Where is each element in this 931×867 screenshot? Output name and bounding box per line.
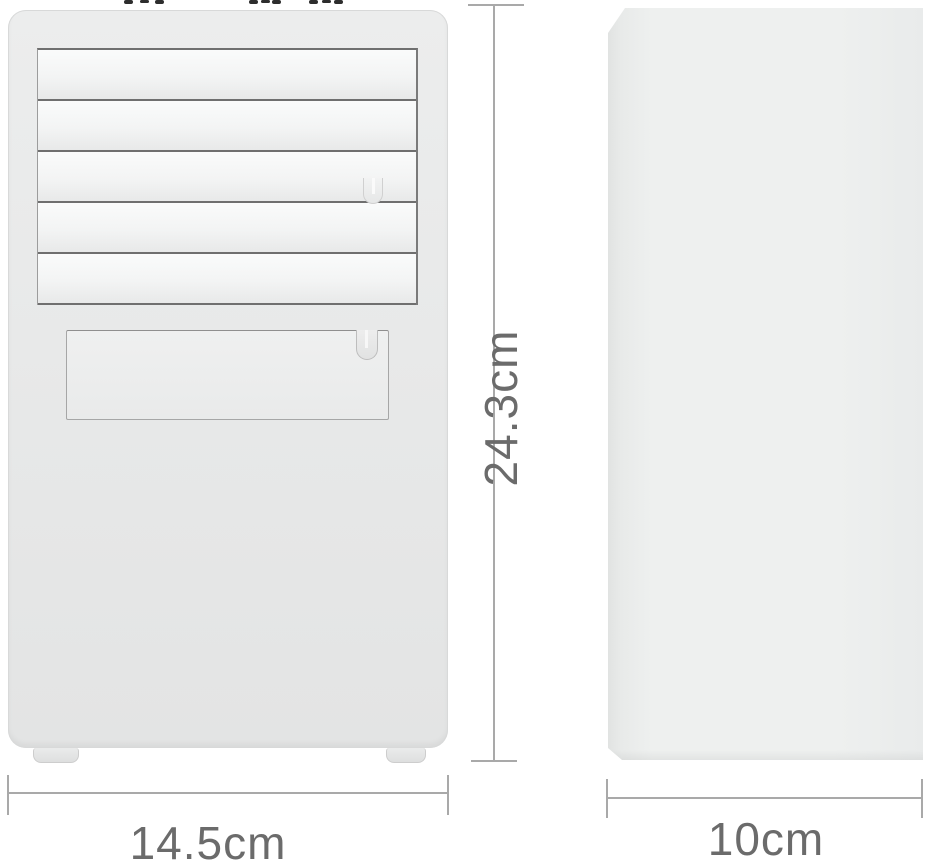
device-side-view [608,8,923,760]
device-foot-right [386,748,426,763]
louver-tab [363,178,383,204]
louver-slat [38,254,416,305]
width-dimension-cap-right [447,775,449,815]
top-knob-mark [124,0,164,7]
knob-dash [155,0,164,4]
height-dimension-label: 24.3cm [475,323,527,493]
height-dimension-cap-bottom [471,760,517,762]
louver-grille [37,48,418,305]
water-tank-panel [66,330,389,420]
knob-dash [334,0,343,4]
knob-dash [140,0,149,3]
louver-slat [38,203,416,254]
panel-pull-tab [356,330,378,360]
louver-slat [38,50,416,101]
knob-dash [124,0,133,4]
product-dimension-image: 24.3cm 14.5cm 10cm [0,0,931,867]
depth-dimension-cap-left [606,779,608,818]
device-foot-left [33,748,79,763]
width-dimension-label: 14.5cm [108,817,308,867]
width-dimension-cap-left [7,775,9,815]
depth-dimension-label: 10cm [666,813,866,865]
width-dimension-line [7,792,449,794]
depth-dimension-cap-right [921,779,923,818]
top-knob-mark [249,0,281,7]
knob-dash [322,0,331,3]
louver-slat [38,101,416,152]
knob-dash [272,0,281,4]
top-knob-mark [309,0,343,7]
knob-dash [261,0,270,3]
knob-dash [249,0,258,4]
device-front-view [8,10,448,748]
knob-dash [309,0,318,4]
height-dimension-cap-top [468,4,524,6]
louver-slat [38,152,416,203]
depth-dimension-line [606,797,923,799]
